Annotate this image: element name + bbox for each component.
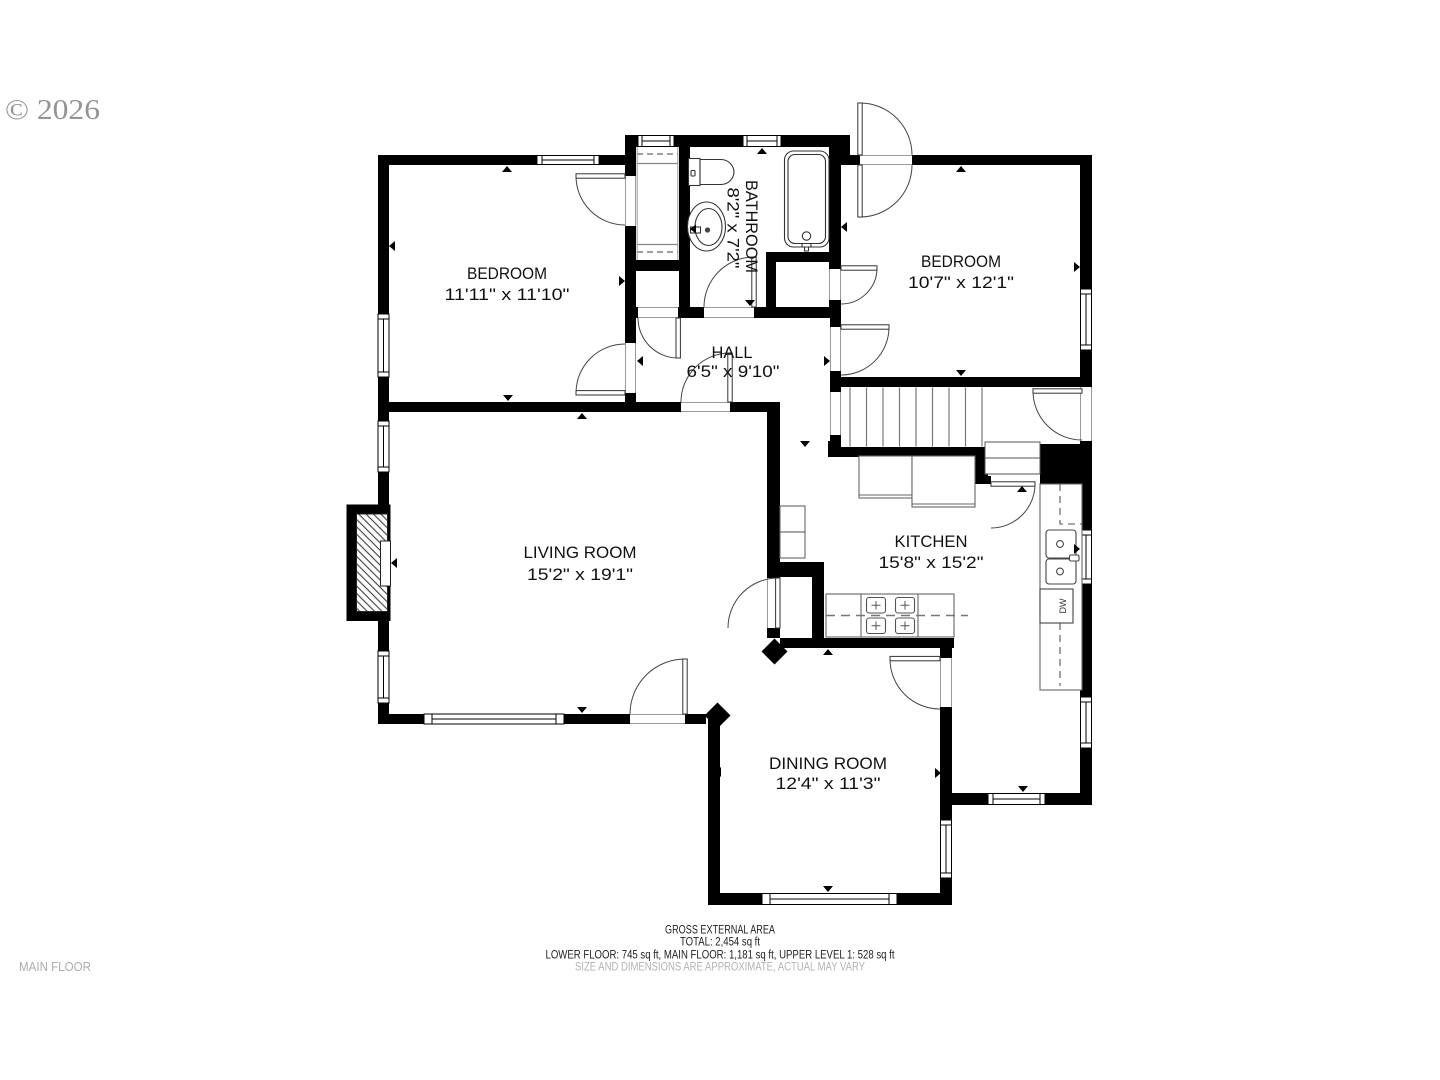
svg-text:MAIN FLOOR: MAIN FLOOR [19, 959, 91, 974]
svg-text:8'2" x 7'2": 8'2" x 7'2" [724, 188, 743, 269]
svg-text:© 2026: © 2026 [5, 94, 100, 126]
svg-text:11'11" x 11'10": 11'11" x 11'10" [445, 285, 570, 304]
svg-text:15'8" x 15'2": 15'8" x 15'2" [879, 553, 984, 572]
svg-text:LOWER FLOOR: 745 sq ft, MAIN F: LOWER FLOOR: 745 sq ft, MAIN FLOOR: 1,18… [546, 950, 896, 962]
svg-text:DINING ROOM: DINING ROOM [769, 754, 887, 773]
svg-text:HALL: HALL [712, 343, 753, 362]
svg-text:TOTAL: 2,454 sq ft: TOTAL: 2,454 sq ft [680, 937, 761, 949]
svg-text:BEDROOM: BEDROOM [921, 252, 1001, 271]
svg-text:GROSS EXTERNAL AREA: GROSS EXTERNAL AREA [665, 925, 775, 937]
svg-text:12'4" x 11'3": 12'4" x 11'3" [776, 774, 881, 793]
svg-text:BEDROOM: BEDROOM [467, 264, 547, 283]
svg-text:KITCHEN: KITCHEN [895, 532, 968, 551]
svg-text:10'7" x 12'1": 10'7" x 12'1" [908, 273, 1014, 292]
svg-text:6'5" x 9'10": 6'5" x 9'10" [687, 362, 780, 381]
svg-text:LIVING ROOM: LIVING ROOM [524, 543, 637, 562]
svg-text:BATHROOM: BATHROOM [742, 180, 761, 273]
svg-text:15'2" x 19'1": 15'2" x 19'1" [527, 565, 633, 584]
svg-text:SIZE AND DIMENSIONS ARE APPROX: SIZE AND DIMENSIONS ARE APPROXIMATE, ACT… [575, 962, 865, 974]
svg-text:DW: DW [1058, 598, 1068, 613]
